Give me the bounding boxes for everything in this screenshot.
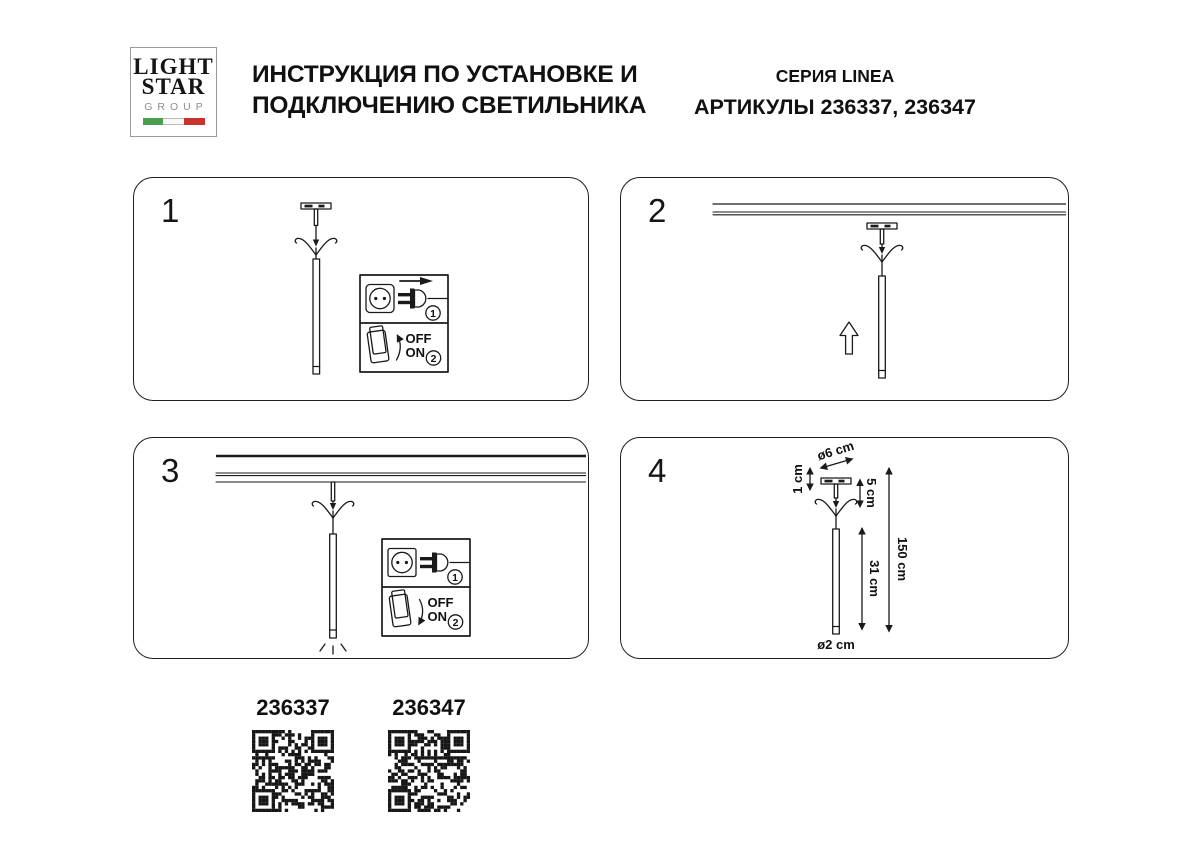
switch-icon [388,589,422,627]
switch-icon [366,325,400,363]
qr-code [252,730,334,812]
step-circle-1-label: 1 [452,572,458,584]
title-line-2: ПОДКЛЮЧЕНИЮ СВЕТИЛЬНИКА [252,90,646,121]
pendant-lamp [295,203,337,374]
title-line-1: ИНСТРУКЦИЯ ПО УСТАНОВКЕ И [252,59,646,90]
off-label: OFF [428,595,454,610]
series-label: СЕРИЯ LINEA [655,66,1015,87]
page-title: ИНСТРУКЦИЯ ПО УСТАНОВКЕ И ПОДКЛЮЧЕНИЮ СВ… [252,59,646,121]
pendant-lamp [312,482,354,654]
socket-icon [366,285,394,313]
qr-code [388,730,470,812]
tube-diameter-label: ø2 cm [817,637,855,652]
track-rail [216,456,586,482]
step-circle-2-label: 2 [453,617,459,629]
step-2-panel: 2 [620,177,1069,401]
italian-flag-stripe [143,118,205,125]
suspension-length-label: 5 cm [864,478,879,508]
series-block: СЕРИЯ LINEA АРТИКУЛЫ 236337, 236347 [655,66,1015,120]
logo-star: STAR [131,77,216,97]
article-code-236347: 236347 [374,695,484,721]
off-label: OFF [406,331,432,346]
step-4-panel: 4 [620,437,1069,659]
step-circle-1-label: 1 [430,308,436,320]
step-3-drawing: 1 OFF ON 2 [134,438,586,656]
canopy-height-label: 1 cm [790,464,805,494]
instruction-sheet: LIGHT STAR GROUP ИНСТРУКЦИЯ ПО УСТАНОВКЕ… [0,0,1200,849]
plug-icon [398,277,447,309]
power-inset-box: 1 OFF ON 2 [382,539,470,636]
flag-red [184,118,205,125]
articles-label: АРТИКУЛЫ 236337, 236347 [655,95,1015,120]
pendant-lamp [861,223,903,378]
light-rays [320,644,346,654]
socket-icon [388,549,416,577]
lightstar-logo: LIGHT STAR GROUP [130,47,217,137]
dimensions-drawing: ø6 cm 1 cm 5 cm 150 cm 31 cm ø2 cm [621,438,1066,656]
flag-green [143,118,164,125]
flag-white [163,118,184,125]
step-1-drawing: 1 OFF ON 2 [134,178,586,398]
total-height-label: 150 cm [895,537,910,581]
step-3-panel: 3 [133,437,589,659]
on-label: ON [406,345,426,360]
step-circle-2-label: 2 [431,353,437,365]
tube-length-label: 31 cm [867,560,882,597]
power-inset-box: 1 OFF ON 2 [360,275,448,372]
step-2-drawing [621,178,1066,398]
plug-icon [420,553,469,573]
pendant-lamp [815,478,857,634]
track-rail [713,204,1066,215]
push-up-arrow-icon [840,322,858,354]
logo-group: GROUP [131,101,216,113]
step-1-panel: 1 [133,177,589,401]
on-label: ON [428,609,448,624]
article-code-236337: 236337 [238,695,348,721]
